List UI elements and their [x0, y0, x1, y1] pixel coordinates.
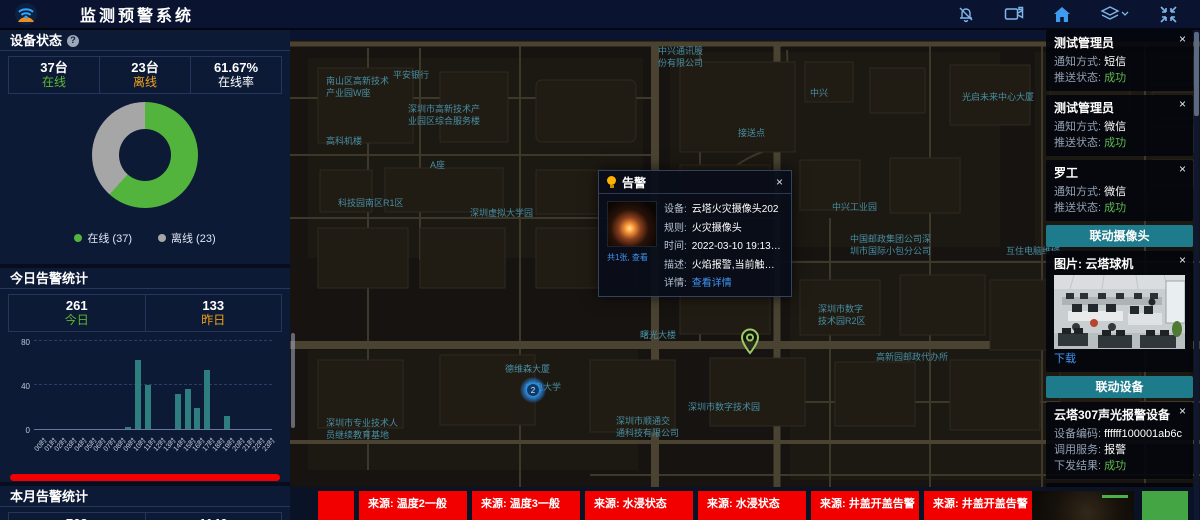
- view-images-link[interactable]: 共1张, 查看: [607, 252, 657, 263]
- alarm-source-tile[interactable]: 来源: 温度2一般: [359, 491, 467, 520]
- row-label: 通知方式:: [1054, 186, 1104, 198]
- card-row: 通知方式: 微信: [1054, 119, 1185, 135]
- map-label: 深圳市专业技术人 员继续教育基地: [326, 418, 398, 441]
- row-label: 推送状态:: [1054, 202, 1104, 214]
- card-title: 测试管理员: [1054, 101, 1185, 116]
- legend-item: 在线 (37): [74, 230, 132, 246]
- header-actions: [956, 5, 1178, 23]
- alarm-bulb-icon: [607, 176, 616, 188]
- alarm-snapshot-tile-green[interactable]: [1142, 491, 1188, 520]
- home-icon[interactable]: [1052, 5, 1072, 23]
- map-label: 深圳市数字技术园: [688, 402, 760, 414]
- month-alarms-title: 本月告警统计: [10, 486, 88, 507]
- stat-value: 261: [9, 298, 145, 313]
- alarm-popup: 告警 × 共1张, 查看 设备:云塔火灾摄像头202规则:火灾摄像头时间:202…: [598, 170, 792, 297]
- map-label: 光启未来中心大厦: [962, 92, 1034, 104]
- alarm-source-tile[interactable]: 来源: 水浸状态: [698, 491, 806, 520]
- row-label: 通知方式:: [1054, 56, 1104, 68]
- left-panel: 设备状态 ? 37台在线23台离线61.67%在线率 在线 (37)离线 (23…: [0, 30, 290, 520]
- alarm-snapshot-thumbnail[interactable]: [607, 201, 657, 247]
- card-row: 推送状态: 成功: [1054, 200, 1185, 216]
- alarm-snapshot-tile[interactable]: [1030, 491, 1134, 520]
- today-stats-table: 261今日133昨日: [8, 294, 282, 332]
- legend-dot-icon: [158, 234, 166, 242]
- map-label: 德维森大厦: [505, 364, 550, 376]
- bar: [125, 427, 131, 429]
- linked-device-card: ×云塔307声光报警设备设备编码: ffffff100001ab6c调用服务: …: [1046, 402, 1193, 479]
- view-details-link[interactable]: 查看详情: [692, 275, 732, 294]
- map-label: 深圳市数字 技术园R2区: [818, 304, 866, 327]
- map-label: 中兴工业园: [832, 202, 877, 214]
- row-value: ffffff100001ab6c: [1104, 428, 1182, 440]
- alarm-source-tile[interactable]: 来源: 温度3一般: [472, 491, 580, 520]
- camera-card-title: 图片: 云塔球机: [1054, 257, 1185, 272]
- device-donut-wrap: [0, 102, 290, 220]
- alarm-source-tile[interactable]: 来源: 水浸状态: [585, 491, 693, 520]
- legend-dot-icon: [74, 234, 82, 242]
- linked-camera-header: 联动摄像头: [1046, 225, 1193, 247]
- exit-fullscreen-icon[interactable]: [1158, 5, 1178, 23]
- y-tick-label: 0: [12, 426, 30, 435]
- video-camera-icon[interactable]: [1004, 5, 1024, 23]
- alarm-fields: 设备:云塔火灾摄像头202规则:火灾摄像头时间:2022-03-10 19:13…: [664, 201, 783, 294]
- stat-value: 763: [9, 516, 145, 520]
- camera-snapshot-card: × 图片: 云塔球机 下载: [1046, 251, 1193, 372]
- today-alarms-title: 今日告警统计: [10, 268, 88, 289]
- device-stat-cell: 37台在线: [9, 57, 99, 93]
- camera-snapshot-image[interactable]: [1054, 275, 1185, 349]
- alert-notify-card: ×罗工通知方式: 微信推送状态: 成功: [1046, 160, 1193, 221]
- month-stat-cell: 763: [9, 513, 145, 520]
- card-row: 设备编码: ffffff100001ab6c: [1054, 426, 1185, 442]
- card-title: 云塔307声光报警设备: [1054, 408, 1185, 423]
- alarm-field-row: 详情:查看详情: [664, 275, 783, 294]
- field-label: 设备:: [664, 201, 687, 220]
- alarm-field-row: 规则:火灾摄像头: [664, 220, 783, 239]
- device-status-title: 设备状态: [10, 30, 62, 51]
- alarm-popup-header: 告警 ×: [599, 171, 791, 194]
- field-value: 火灾摄像头: [692, 220, 742, 239]
- card-row: 调用服务: 报警: [1054, 442, 1185, 458]
- stat-label: 今日: [9, 313, 145, 327]
- row-label: 设备编码:: [1054, 428, 1104, 440]
- card-close-icon[interactable]: ×: [1179, 98, 1186, 110]
- field-label: 规则:: [664, 220, 687, 239]
- field-label: 时间:: [664, 238, 687, 257]
- card-title: 罗工: [1054, 166, 1185, 181]
- gridline: [34, 340, 272, 341]
- map-label: 高新园邮政代办所: [876, 352, 948, 364]
- layers-icon[interactable]: [1100, 5, 1130, 23]
- left-panel-scrollbar[interactable]: [291, 333, 295, 428]
- card-row: 推送状态: 成功: [1054, 70, 1185, 86]
- section-today-alarms: 今日告警统计 261今日133昨日 00时01时02时03时04时05时06时0…: [0, 268, 290, 482]
- app-logo-icon: [14, 2, 38, 26]
- alarm-source-tile[interactable]: 来源: 井盖开盖告警: [924, 491, 1032, 520]
- map-label: A座: [430, 160, 445, 172]
- bar: [135, 360, 141, 429]
- hourly-alarm-bar-chart: 00时01时02时03时04时05时06时07时08时09时10时11时12时1…: [10, 334, 280, 472]
- bar: [175, 394, 181, 429]
- device-stats-table: 37台在线23台离线61.67%在线率: [8, 56, 282, 94]
- bar-chart-x-axis: 00时01时02时03时04时05时06时07时08时09时10时11时12时1…: [34, 434, 272, 470]
- bar: [145, 385, 151, 429]
- alarm-popup-title: 告警: [622, 174, 646, 191]
- bar-chart-plot: [34, 342, 272, 430]
- card-close-icon[interactable]: ×: [1179, 163, 1186, 175]
- stat-value: 133: [146, 298, 282, 313]
- row-value: 短信: [1104, 56, 1126, 68]
- y-tick-label: 40: [12, 382, 30, 391]
- map-label: 高科机楼: [326, 136, 362, 148]
- alert-notify-card: ×测试管理员通知方式: 微信推送状态: 成功: [1046, 95, 1193, 156]
- map-label: 深圳市高新技术产 业园区综合服务楼: [408, 104, 480, 127]
- device-cluster-marker[interactable]: 2: [520, 377, 546, 403]
- map-label: 科技园南区R1区: [338, 198, 404, 210]
- bar: [185, 389, 191, 429]
- stat-value: 1146: [146, 516, 282, 520]
- notify-cards: ×测试管理员通知方式: 短信推送状态: 成功×测试管理员通知方式: 微信推送状态…: [1046, 30, 1193, 221]
- map-label: 中兴通讯股 份有限公司: [658, 46, 703, 69]
- help-icon[interactable]: ?: [67, 35, 79, 47]
- stat-value: 61.67%: [191, 60, 281, 75]
- donut-legend: 在线 (37)离线 (23): [0, 230, 290, 246]
- map-label: 南山区高新技术 产业园W座: [326, 76, 389, 99]
- stat-label: 昨日: [146, 313, 282, 327]
- today-stat-cell: 261今日: [9, 295, 145, 331]
- bar: [194, 408, 200, 429]
- row-value: 报警: [1104, 444, 1126, 456]
- field-value: 2022-03-10 19:13:07: [692, 238, 783, 257]
- today-stat-cell: 133昨日: [145, 295, 282, 331]
- row-value: 微信: [1104, 186, 1126, 198]
- card-row: 通知方式: 微信: [1054, 184, 1185, 200]
- bar: [204, 370, 210, 429]
- card-row: 通知方式: 短信: [1054, 54, 1185, 70]
- field-value: 云塔火灾摄像头202: [692, 201, 779, 220]
- field-label: 详情:: [664, 275, 687, 294]
- alarm-mute-icon[interactable]: [956, 5, 976, 23]
- row-label: 推送状态:: [1054, 137, 1104, 149]
- app-root: 监测预警系统: [0, 0, 1200, 520]
- section-month-alarms: 本月告警统计 7631146: [0, 486, 290, 520]
- card-row: 推送状态: 成功: [1054, 135, 1185, 151]
- device-stat-cell: 61.67%在线率: [190, 57, 281, 93]
- month-stats-table: 7631146: [8, 512, 282, 520]
- alarm-field-row: 设备:云塔火灾摄像头202: [664, 201, 783, 220]
- month-stat-cell: 1146: [145, 513, 282, 520]
- map-label: 深圳市顺通交 通科技有限公司: [616, 416, 679, 439]
- right-panel: ×测试管理员通知方式: 短信推送状态: 成功×测试管理员通知方式: 微信推送状态…: [1046, 30, 1193, 520]
- popup-thumb-col: 共1张, 查看: [607, 201, 657, 294]
- row-label: 调用服务:: [1054, 444, 1104, 456]
- device-stat-cell: 23台离线: [99, 57, 190, 93]
- map-label: 接送点: [738, 128, 765, 140]
- section-device-status: 设备状态 ? 37台在线23台离线61.67%在线率 在线 (37)离线 (23…: [0, 30, 290, 264]
- scrollbar-thumb[interactable]: [1194, 32, 1199, 116]
- row-label: 推送状态:: [1054, 72, 1104, 84]
- legend-label: 离线 (23): [171, 230, 216, 246]
- stat-value: 37台: [9, 60, 99, 75]
- page-title: 监测预警系统: [80, 2, 194, 26]
- cluster-count: 2: [527, 384, 539, 396]
- map-label: 中兴: [810, 88, 828, 100]
- popup-close-icon[interactable]: ×: [776, 175, 783, 189]
- row-value: 成功: [1104, 202, 1126, 214]
- alert-notify-card: ×测试管理员通知方式: 短信推送状态: 成功: [1046, 30, 1193, 91]
- row-value: 微信: [1104, 121, 1126, 133]
- alarm-popup-body: 共1张, 查看 设备:云塔火灾摄像头202规则:火灾摄像头时间:2022-03-…: [599, 194, 791, 294]
- card-close-icon[interactable]: ×: [1179, 254, 1186, 266]
- row-value: 成功: [1104, 137, 1126, 149]
- stat-label: 离线: [100, 75, 190, 89]
- linked-device-header: 联动设备: [1046, 376, 1193, 398]
- donut-hole: [119, 129, 171, 181]
- right-panel-scrollbar[interactable]: [1194, 30, 1199, 520]
- alarm-field-row: 时间:2022-03-10 19:13:07: [664, 238, 783, 257]
- field-label: 描述:: [664, 257, 687, 276]
- card-close-icon[interactable]: ×: [1179, 405, 1186, 417]
- today-alarms-header: 今日告警统计: [0, 268, 290, 289]
- legend-item: 离线 (23): [158, 230, 216, 246]
- row-label: 下发结果:: [1054, 460, 1104, 472]
- stat-value: 23台: [100, 60, 190, 75]
- gridline: [34, 384, 272, 385]
- map-label: 深圳虚拟大学园: [470, 208, 533, 220]
- card-row: 下发结果: 成功: [1054, 458, 1185, 474]
- bottom-alarm-strip: 来源: 温度2一般来源: 温度3一般来源: 水浸状态来源: 水浸状态来源: 井盖…: [290, 487, 1200, 520]
- month-alarms-header: 本月告警统计: [0, 486, 290, 507]
- legend-label: 在线 (37): [87, 230, 132, 246]
- download-link[interactable]: 下载: [1054, 352, 1185, 367]
- top-header: 监测预警系统: [0, 0, 1200, 30]
- row-value: 成功: [1104, 72, 1126, 84]
- stat-label: 在线率: [191, 75, 281, 89]
- map-label: 平安银行: [393, 70, 429, 82]
- stat-label: 在线: [9, 75, 99, 89]
- field-value: 火焰报警,当前触发值为...: [692, 257, 783, 276]
- map-label: 曙光大楼: [640, 330, 676, 342]
- unprocessed-progress-bar: [10, 474, 280, 481]
- alarm-field-row: 描述:火焰报警,当前触发值为...: [664, 257, 783, 276]
- alarm-source-tile[interactable]: 来源: 井盖开盖告警: [811, 491, 919, 520]
- bar: [224, 416, 230, 429]
- card-close-icon[interactable]: ×: [1179, 33, 1186, 45]
- alarm-source-tile[interactable]: [318, 491, 354, 520]
- location-pin-icon[interactable]: [740, 328, 760, 360]
- row-label: 通知方式:: [1054, 121, 1104, 133]
- row-value: 成功: [1104, 460, 1126, 472]
- map-label: 中国邮政集团公司深 圳市国际小包分公司: [850, 234, 931, 257]
- card-title: 测试管理员: [1054, 36, 1185, 51]
- device-status-header: 设备状态 ?: [0, 30, 290, 51]
- y-tick-label: 80: [12, 338, 30, 347]
